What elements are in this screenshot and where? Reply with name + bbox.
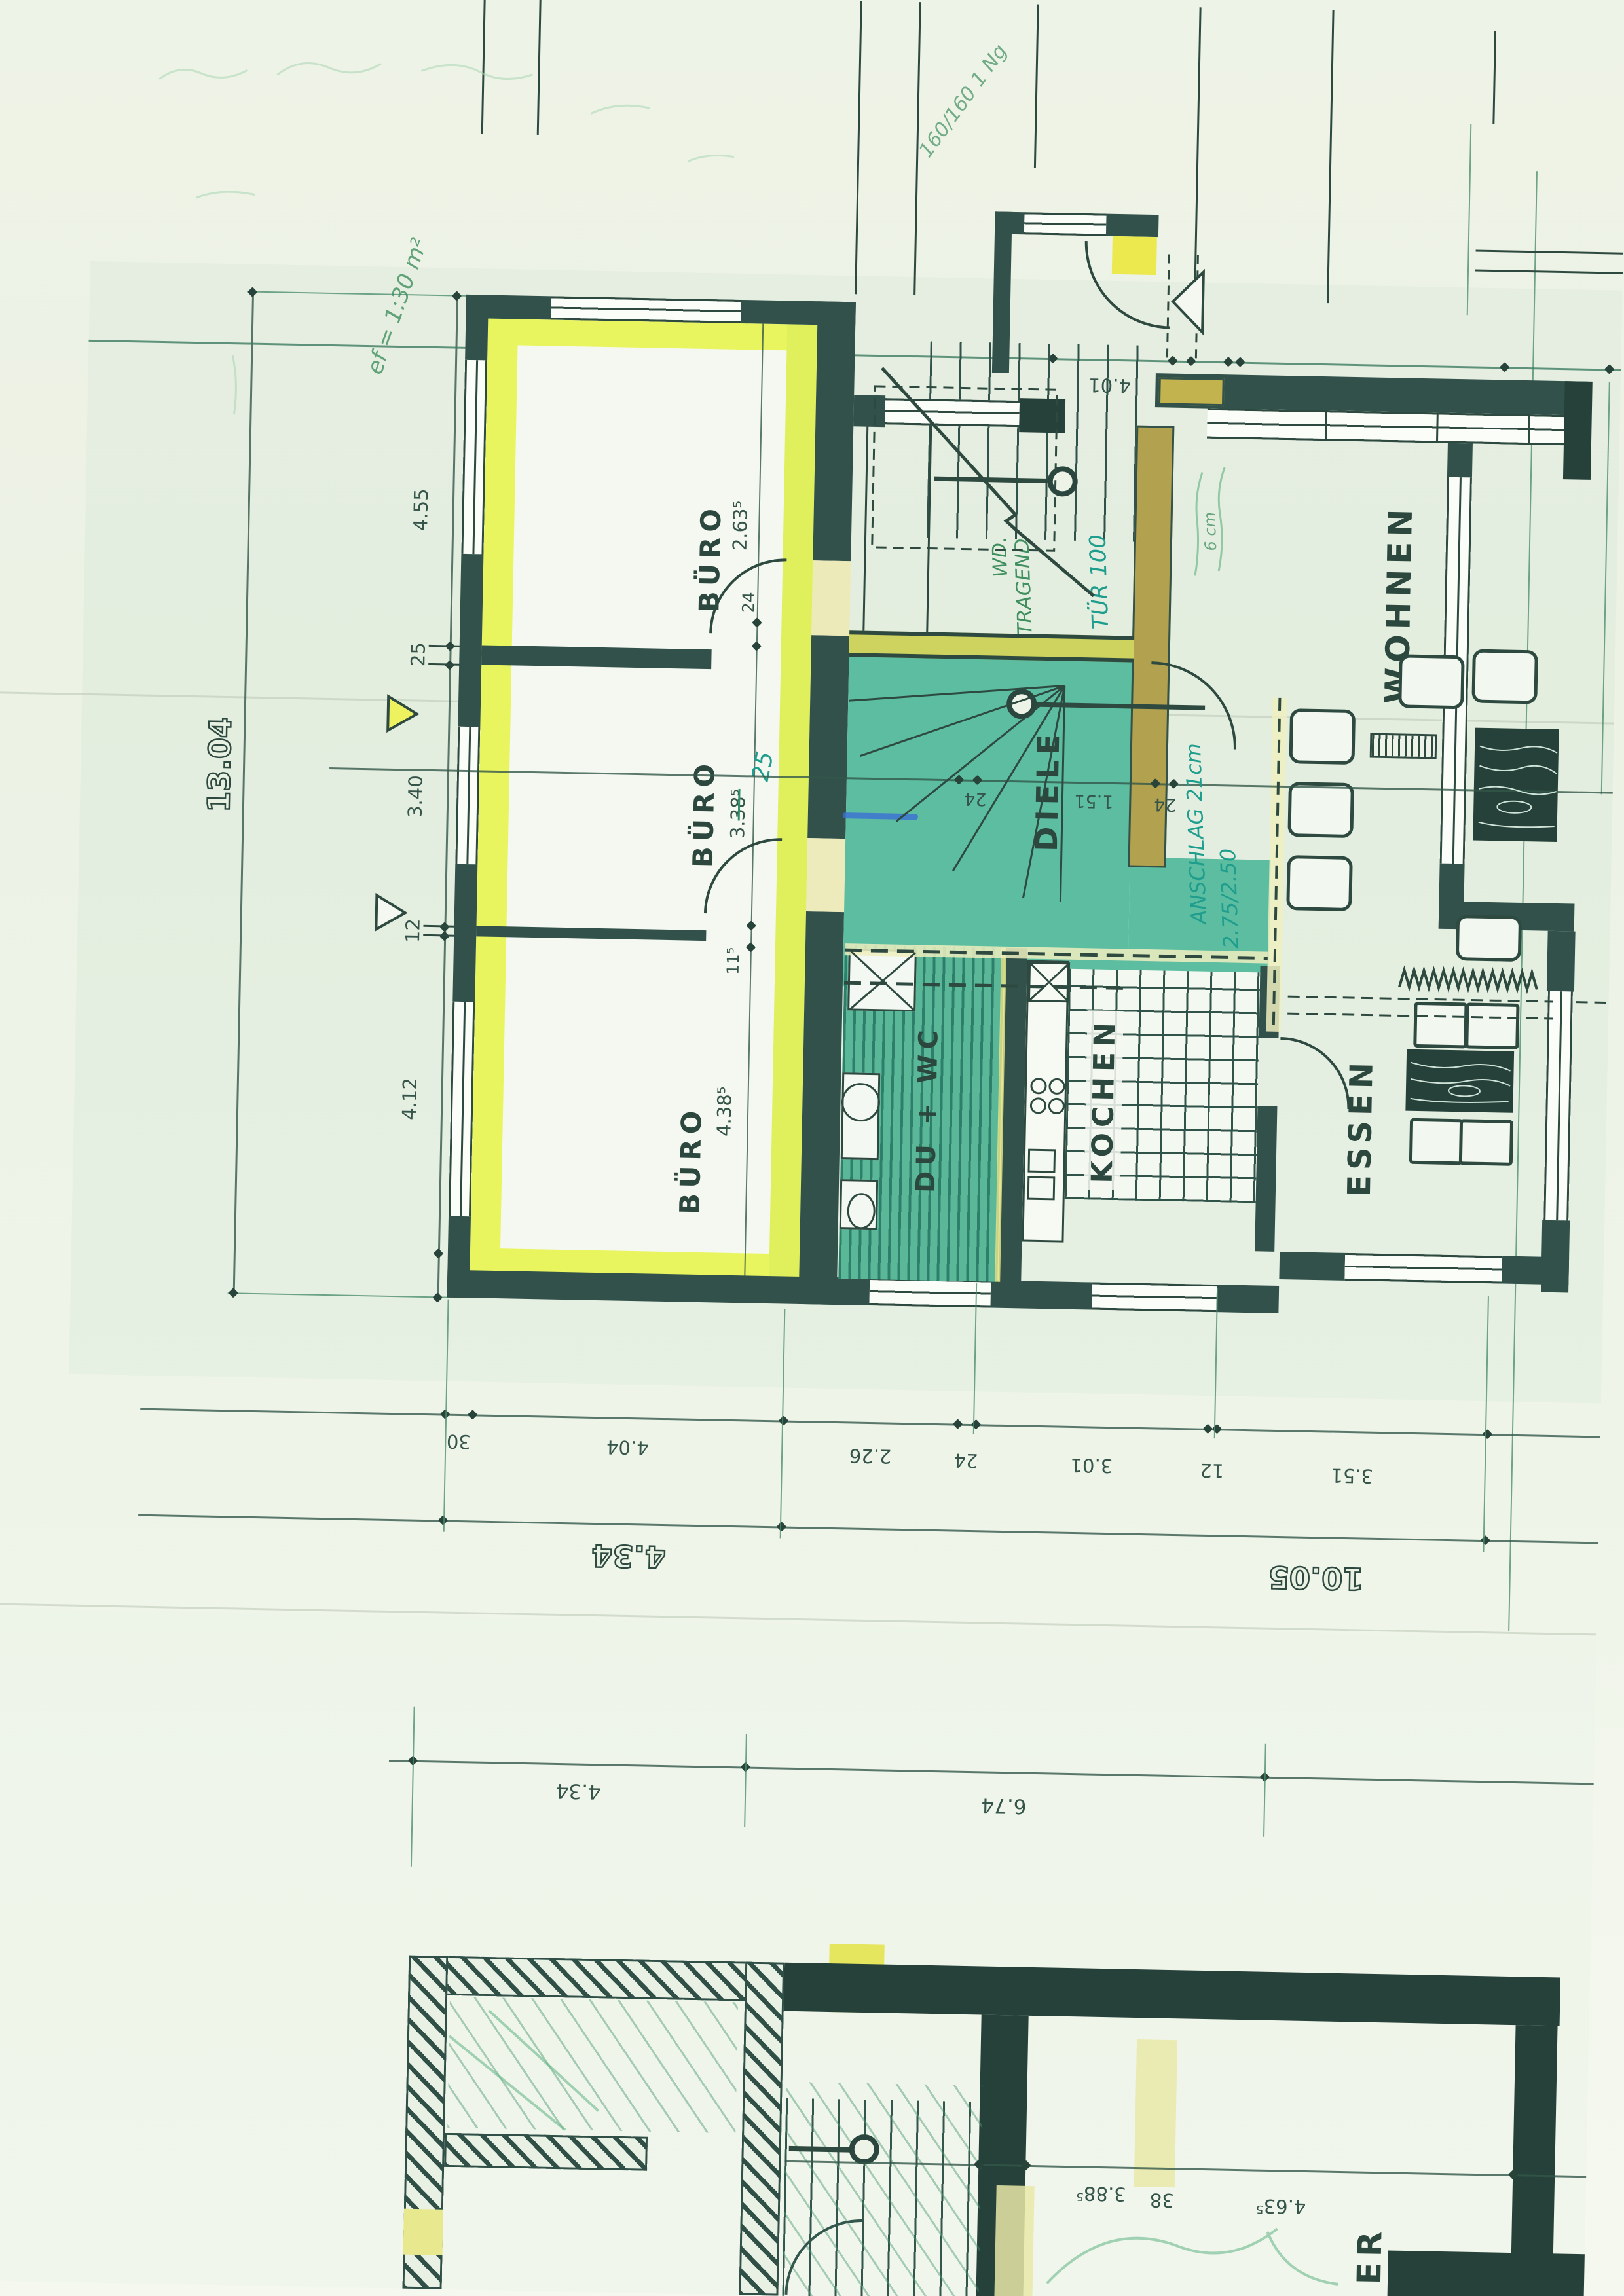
- door-arc-buero-1: [710, 558, 786, 634]
- shower-x-icon: [850, 951, 915, 1010]
- winder-treads: [845, 682, 1064, 902]
- fridge-x-icon: [1029, 963, 1069, 1002]
- pencil-scribbles-basement: [445, 2010, 1343, 2289]
- door-arc-wohnen: [1150, 663, 1236, 749]
- door-arc-buero-2: [705, 838, 782, 915]
- plan-sheet: 13.04 4.55 25 3.40 12 4.12 4.01 24 4 4.8…: [0, 0, 1624, 2296]
- radiator-zigzag: [1399, 970, 1537, 989]
- washbasin-bowl: [842, 1084, 879, 1121]
- beam-dashed: [1287, 1013, 1553, 1019]
- door-arc-kochen-essen: [1279, 1038, 1350, 1109]
- toilet-bowl: [848, 1194, 875, 1228]
- beam-dashed: [845, 950, 1268, 958]
- pencil-squiggle-wohnen: [1195, 467, 1225, 576]
- scanned-floor-plan-page: 13.04 4.55 25 3.40 12 4.12 4.01 24 4 4.8…: [0, 0, 1624, 2296]
- beam-dashed: [1576, 1002, 1609, 1003]
- beam-dashed: [1274, 698, 1280, 1030]
- wind-dashed-line: [1167, 254, 1169, 360]
- door-arc-entrance: [1084, 241, 1171, 327]
- entrance-arrow-icon: [1172, 272, 1204, 333]
- stair-opening-dashed: [872, 386, 1058, 551]
- wood-grain-dining-table: [1411, 1063, 1511, 1103]
- stove-burners: [1031, 1079, 1064, 1114]
- door-arc-basement: [786, 2219, 862, 2296]
- wood-grain-coffee-table: [1479, 746, 1557, 828]
- stair-break-line: [877, 368, 1098, 596]
- ink-overlay: [0, 0, 1624, 2296]
- pencil-scribbles: [153, 60, 735, 424]
- beam-dashed: [1288, 996, 1553, 1002]
